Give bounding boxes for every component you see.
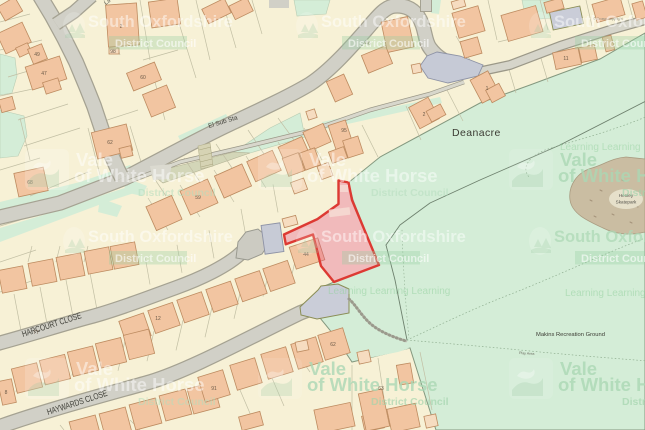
svg-text:of White Horse: of White Horse: [558, 165, 645, 186]
svg-text:2: 2: [423, 112, 426, 118]
svg-text:South Oxfordshire: South Oxfordshire: [88, 13, 233, 31]
svg-text:11: 11: [563, 56, 568, 62]
svg-text:of White Horse: of White Horse: [74, 165, 205, 186]
svg-text:District Council: District Council: [581, 253, 645, 265]
svg-text:Learning Learning: Learning Learning: [565, 288, 645, 299]
svg-text:South Oxfordshire: South Oxfordshire: [554, 228, 645, 246]
svg-text:District Council: District Council: [371, 396, 449, 408]
svg-text:Skatepark: Skatepark: [616, 200, 637, 205]
svg-text:12: 12: [155, 316, 161, 322]
svg-text:77: 77: [33, 330, 39, 336]
svg-text:62: 62: [107, 140, 113, 146]
svg-text:60: 60: [140, 75, 146, 81]
svg-text:of White Horse: of White Horse: [558, 374, 645, 395]
svg-text:District Council: District Council: [115, 253, 196, 265]
svg-text:District Council: District Council: [138, 396, 216, 408]
svg-text:Makins Recreation Ground: Makins Recreation Ground: [536, 332, 605, 338]
svg-text:District Council: District Council: [138, 187, 216, 199]
svg-text:District Council: District Council: [348, 253, 429, 265]
svg-text:62: 62: [330, 342, 336, 348]
svg-text:South Oxfordshire: South Oxfordshire: [321, 13, 466, 31]
svg-text:of White Horse: of White Horse: [307, 165, 438, 186]
svg-text:of White Horse: of White Horse: [307, 374, 438, 395]
svg-text:South Oxfordshire: South Oxfordshire: [88, 228, 233, 246]
svg-text:47: 47: [41, 71, 47, 77]
svg-text:91: 91: [211, 386, 217, 392]
svg-text:District Council: District Council: [581, 38, 645, 50]
svg-text:8: 8: [5, 390, 8, 396]
svg-text:District Council: District Council: [622, 396, 645, 408]
svg-text:Learning Learning: Learning Learning: [560, 142, 641, 153]
svg-text:District Council: District Council: [348, 38, 429, 50]
svg-text:95: 95: [341, 128, 347, 134]
svg-text:of White Horse: of White Horse: [74, 374, 205, 395]
svg-text:Learning Learning Learning: Learning Learning Learning: [328, 286, 450, 297]
svg-text:District Council: District Council: [622, 187, 645, 199]
svg-text:Deanacre: Deanacre: [452, 127, 501, 139]
svg-text:South Oxfordshire: South Oxfordshire: [554, 13, 645, 31]
svg-text:South Oxfordshire: South Oxfordshire: [321, 228, 466, 246]
svg-text:1: 1: [486, 86, 489, 92]
svg-text:District Council: District Council: [371, 187, 449, 199]
svg-text:49: 49: [34, 52, 40, 58]
svg-text:District Council: District Council: [115, 38, 196, 50]
